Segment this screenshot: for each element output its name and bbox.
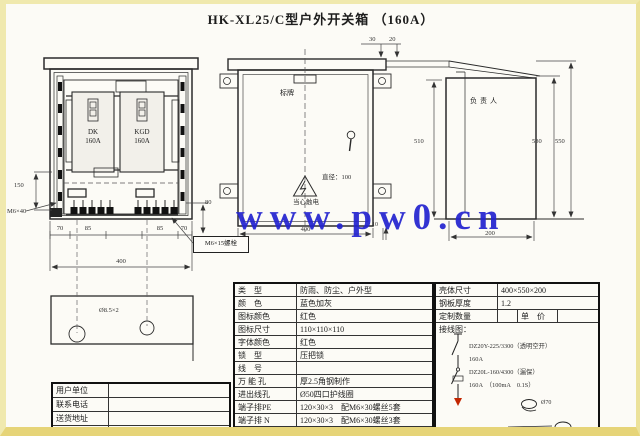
dim-510: 510 <box>414 138 424 145</box>
spec-value: 压把锁 <box>297 349 432 361</box>
spec-row: 端子排 N120×30×3 配M6×30螺丝3套 <box>235 414 432 427</box>
warning-label: 当心触电 <box>289 199 323 206</box>
spec-label: 进出线孔 <box>235 388 297 400</box>
spec-label: 颜 色 <box>235 297 297 309</box>
breaker-right-amp: 160A <box>120 137 164 145</box>
dim-150: 150 <box>14 182 24 189</box>
clamp-label: Ø70 <box>541 400 551 407</box>
wiring-row: 接线图： <box>436 323 598 336</box>
spec-row: 图标颜色红色 <box>235 310 432 323</box>
dim-10: 10 <box>372 222 378 229</box>
spec-label: 端子排 N <box>235 414 297 426</box>
spec-value <box>297 362 432 374</box>
contact-label: 联系电话 <box>53 398 109 411</box>
wiring-breaker2-model: DZ20L-160/4300（漏保） <box>469 369 539 376</box>
order-row: 壳体尺寸400×550×200 <box>436 284 598 297</box>
spec-row: 锁 型压把锁 <box>235 349 432 362</box>
dim-door-width: 400 <box>238 226 373 233</box>
contact-value <box>109 398 229 411</box>
dim-200: 200 <box>446 230 534 237</box>
wiring-label: 接线图： <box>436 323 471 336</box>
front-view-dims <box>26 172 208 271</box>
breaker-left-name: DK <box>72 128 114 136</box>
spec-label: 端子排PE <box>235 401 297 413</box>
dim-front-width: 400 <box>50 258 192 265</box>
spec-label: 元件间距 <box>235 427 297 436</box>
wiring-breaker1-amp: 160A <box>469 356 483 363</box>
spec-label: 锁 型 <box>235 349 297 361</box>
diameter-label: 直径：100 <box>322 174 351 181</box>
spec-label: 图标尺寸 <box>235 323 297 335</box>
spec-row: 类 型防雨、防尘、户外型 <box>235 284 432 297</box>
contact-value <box>109 384 229 397</box>
spec-row: 颜 色蓝色加灰 <box>235 297 432 310</box>
spec-row: 线 号 <box>235 362 432 375</box>
spec-value: ≥ 3㎜ <box>297 427 432 436</box>
spec-row: 元件间距≥ 3㎜ <box>235 427 432 436</box>
contact-value <box>109 412 229 425</box>
order-table: 壳体尺寸400×550×200 钢板厚度1.2 定制数量单 价 接线图： <box>434 282 600 436</box>
contact-row: 联系电话 <box>53 398 229 412</box>
dim-530: 530 <box>532 138 542 145</box>
spec-value: 蓝色加灰 <box>297 297 432 309</box>
order-row: 定制数量单 价 <box>436 310 598 323</box>
contact-value <box>109 426 229 436</box>
contact-row: 备 注 <box>53 426 229 436</box>
contact-label: 备 注 <box>53 426 109 436</box>
contact-row: 送货地址 <box>53 412 229 426</box>
price-value <box>558 310 598 322</box>
wiring-breaker1-model: DZ20Y-225/3300（透明空开） <box>469 343 551 350</box>
spec-table: 类 型防雨、防尘、户外型 颜 色蓝色加灰 图标颜色红色 图标尺寸110×110×… <box>233 282 434 436</box>
spec-value: 防雨、防尘、户外型 <box>297 284 432 296</box>
plate-detail-lines <box>51 220 193 361</box>
contact-label: 送货地址 <box>53 412 109 425</box>
dim-20: 20 <box>389 36 396 43</box>
order-row: 钢板厚度1.2 <box>436 297 598 310</box>
dim-70-right: 70 <box>176 225 192 232</box>
spec-label: 万 能 孔 <box>235 375 297 387</box>
spec-value: 110×110×110 <box>297 323 432 335</box>
breaker-right-name: KGD <box>120 128 164 136</box>
sheet-title: HK-XL25/C型户外开关箱 （160A） <box>6 9 636 28</box>
spec-label: 类 型 <box>235 284 297 296</box>
shell-size-value: 400×550×200 <box>498 284 598 296</box>
qty-label: 定制数量 <box>436 310 498 322</box>
dim-80: 80 <box>205 199 212 206</box>
thickness-value: 1.2 <box>498 297 598 309</box>
spec-label: 图标颜色 <box>235 310 297 322</box>
spec-value: 厚2.5角钢制作 <box>297 375 432 387</box>
contact-row: 用户单位 <box>53 384 229 398</box>
bolt-left-label: M6×40 <box>7 208 26 215</box>
spec-value: 红色 <box>297 336 432 348</box>
spec-value: 120×30×3 配M6×30螺丝3套 <box>297 414 432 426</box>
price-label: 单 价 <box>518 310 558 322</box>
wiring-breaker2-amp: 160A （100mA 0.1S） <box>469 382 535 389</box>
dim-85-right: 85 <box>142 225 178 232</box>
shell-size-label: 壳体尺寸 <box>436 284 498 296</box>
spec-row: 字体颜色红色 <box>235 336 432 349</box>
spec-row: 万 能 孔厚2.5角钢制作 <box>235 375 432 388</box>
spec-label: 线 号 <box>235 362 297 374</box>
dim-85-left: 85 <box>70 225 106 232</box>
spec-value: Ø50四口护线圈 <box>297 388 432 400</box>
contact-table: 用户单位 联系电话 送货地址 备 注 <box>51 382 231 436</box>
dim-550: 550 <box>555 138 565 145</box>
spec-row: 进出线孔Ø50四口护线圈 <box>235 388 432 401</box>
thickness-label: 钢板厚度 <box>436 297 498 309</box>
breaker-left-amp: 160A <box>72 137 114 145</box>
drawing-sheet: HK-XL25/C型户外开关箱 （160A） www.pw0.cn DK 160… <box>0 0 640 436</box>
spec-row: 图标尺寸110×110×110 <box>235 323 432 336</box>
qty-value <box>498 310 518 322</box>
spec-label: 字体颜色 <box>235 336 297 348</box>
plate-hole-label: Ø8.5×2 <box>99 307 119 314</box>
dim-30: 30 <box>369 36 376 43</box>
contact-label: 用户单位 <box>53 384 109 397</box>
dim-70-left: 70 <box>50 225 70 232</box>
nameplate-label: 标牌 <box>280 89 294 97</box>
spec-value: 红色 <box>297 310 432 322</box>
spec-row: 端子排PE120×30×3 配M6×30螺丝5套 <box>235 401 432 414</box>
owner-label: 负责人 <box>470 97 500 105</box>
bolt-bottom-label: M6×15螺栓 <box>193 236 249 253</box>
spec-value: 120×30×3 配M6×30螺丝5套 <box>297 401 432 413</box>
